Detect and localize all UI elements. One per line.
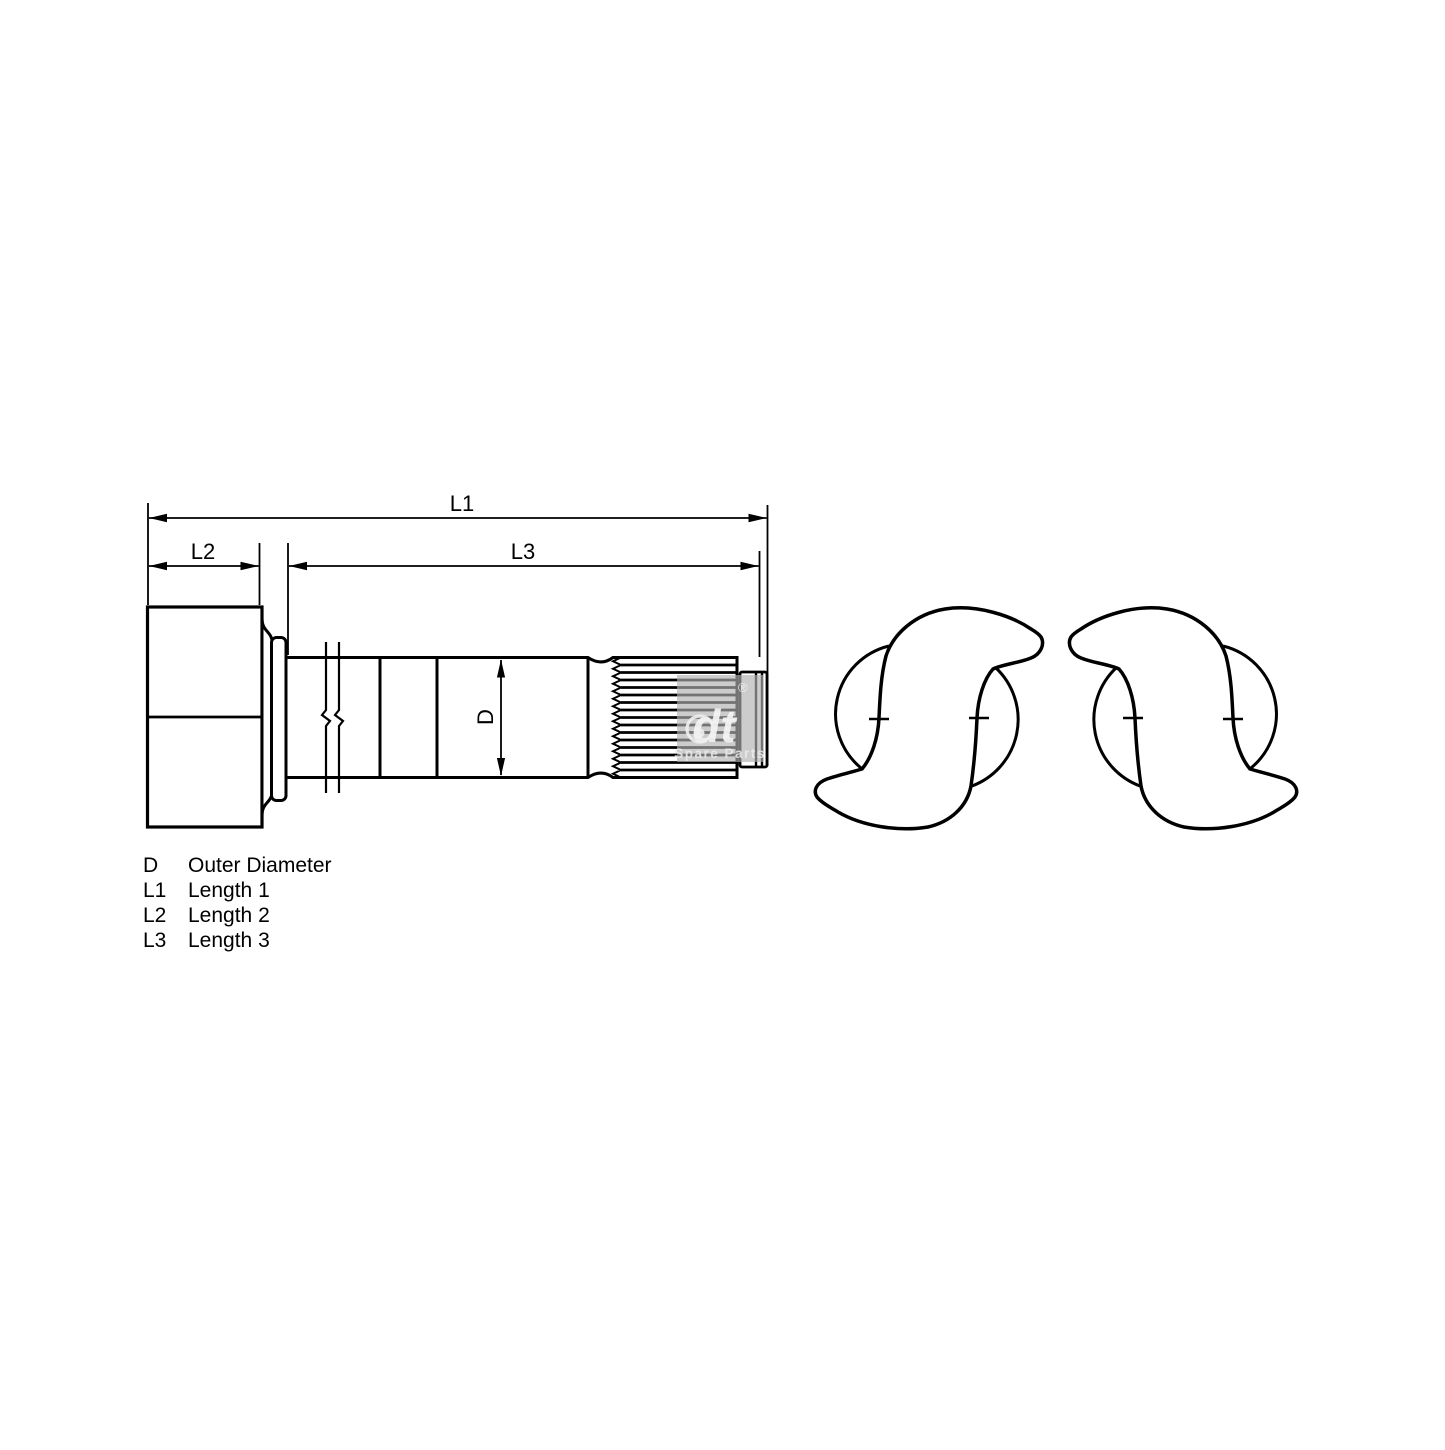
legend-symbol: L2 <box>143 904 166 927</box>
legend-symbol: D <box>143 854 158 877</box>
dimension-label-l2: L2 <box>191 539 215 564</box>
dt-logo-icon: dt <box>692 700 737 752</box>
arrow-left-icon <box>149 562 167 570</box>
arrow-right-icon <box>749 514 767 522</box>
legend-description: Outer Diameter <box>188 854 332 877</box>
arrow-right-icon <box>741 562 759 570</box>
legend-description: Length 1 <box>188 879 270 902</box>
s-cam-left <box>815 608 1042 829</box>
dt-logo-ball-icon <box>696 729 705 738</box>
legend-description: Length 2 <box>188 904 270 927</box>
arrow-right-icon <box>241 562 259 570</box>
dimension-legend: D Outer Diameter L1 Length 1 L2 Length 2… <box>143 854 332 952</box>
s-cam-profiles <box>815 608 1296 829</box>
dimension-label-l1: L1 <box>450 491 474 516</box>
dt-watermark: dt ® Spare Parts <box>674 675 766 762</box>
dimension-l1: L1 <box>149 491 767 522</box>
dimension-l2: L2 <box>149 539 259 570</box>
legend-symbol: L3 <box>143 929 166 952</box>
legend-symbol: L1 <box>143 879 166 902</box>
dimension-label-l3: L3 <box>511 539 535 564</box>
brake-camshaft-diagram: L1 L2 L3 D dt ® Spare Parts <box>0 0 1445 1445</box>
technical-drawing-page: L1 L2 L3 D dt ® Spare Parts <box>0 0 1445 1445</box>
dimension-label-d: D <box>473 709 498 725</box>
registered-trademark-icon: ® <box>738 680 748 695</box>
s-cam-right <box>1069 608 1296 829</box>
legend-description: Length 3 <box>188 929 270 952</box>
arrow-left-icon <box>149 514 167 522</box>
arrow-left-icon <box>289 562 307 570</box>
dimension-l3: L3 <box>289 539 759 570</box>
shoulder-disc <box>272 638 287 801</box>
watermark-subtitle: Spare Parts <box>674 746 766 761</box>
camshaft-side-view <box>148 607 768 827</box>
